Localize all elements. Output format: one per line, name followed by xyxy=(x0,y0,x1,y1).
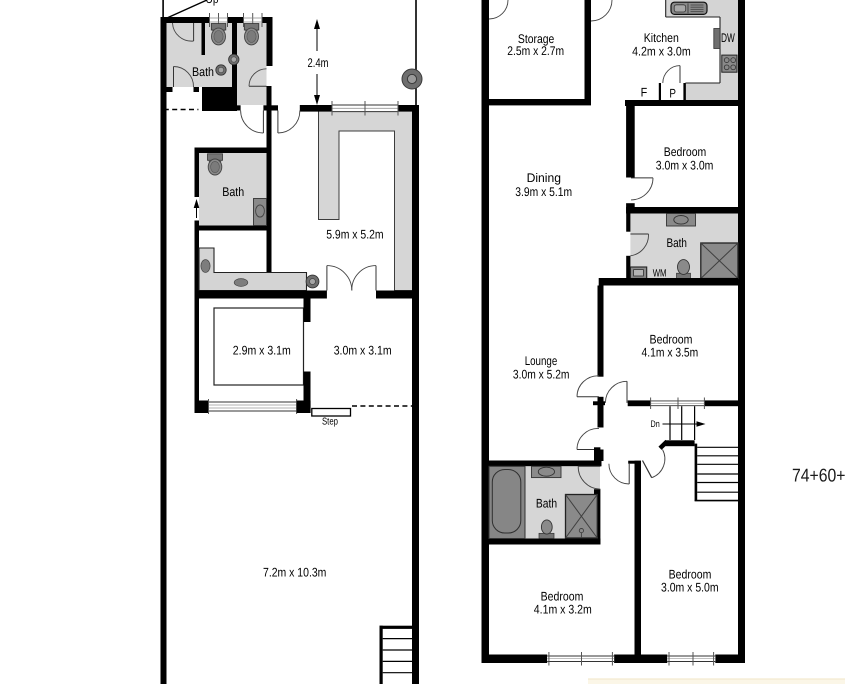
svg-text:3.0m x 3.1m: 3.0m x 3.1m xyxy=(334,344,392,358)
svg-text:Bedroom: Bedroom xyxy=(541,590,584,604)
svg-text:Bath: Bath xyxy=(192,65,214,79)
svg-text:5.9m x 5.2m: 5.9m x 5.2m xyxy=(326,227,383,241)
svg-text:4.2m x 3.0m: 4.2m x 3.0m xyxy=(632,45,691,59)
svg-text:3.0m x 3.0m: 3.0m x 3.0m xyxy=(656,158,714,172)
svg-text:Kitchen: Kitchen xyxy=(644,31,679,45)
svg-text:2.5m x 2.7m: 2.5m x 2.7m xyxy=(507,44,564,58)
svg-text:3.0m x 5.2m: 3.0m x 5.2m xyxy=(513,368,570,382)
svg-text:4.1m x 3.5m: 4.1m x 3.5m xyxy=(642,346,699,360)
svg-text:2.9m x 3.1m: 2.9m x 3.1m xyxy=(233,344,291,358)
svg-text:WM: WM xyxy=(653,267,667,279)
svg-text:Lounge: Lounge xyxy=(525,354,558,368)
svg-text:Step: Step xyxy=(322,416,338,427)
svg-text:Up: Up xyxy=(206,0,219,6)
svg-text:Bath: Bath xyxy=(536,496,557,510)
svg-text:3.0m x 5.0m: 3.0m x 5.0m xyxy=(661,581,719,595)
svg-text:2.4m: 2.4m xyxy=(308,56,329,70)
svg-text:7.2m x 10.3m: 7.2m x 10.3m xyxy=(263,566,326,580)
svg-text:DW: DW xyxy=(721,31,735,45)
svg-text:Bedroom: Bedroom xyxy=(669,568,712,582)
svg-text:4.1m x 3.2m: 4.1m x 3.2m xyxy=(534,603,592,617)
svg-text:P: P xyxy=(669,87,676,101)
svg-text:Bath: Bath xyxy=(222,185,244,199)
svg-text:Bedroom: Bedroom xyxy=(650,333,693,347)
svg-text:F: F xyxy=(641,86,648,100)
svg-text:Bath: Bath xyxy=(666,236,687,250)
svg-text:74+60+: 74+60+ xyxy=(792,464,845,485)
svg-text:Bedroom: Bedroom xyxy=(664,145,707,159)
svg-text:Dining: Dining xyxy=(527,171,561,185)
svg-text:Dn: Dn xyxy=(651,419,660,430)
svg-text:3.9m x 5.1m: 3.9m x 5.1m xyxy=(515,185,572,199)
